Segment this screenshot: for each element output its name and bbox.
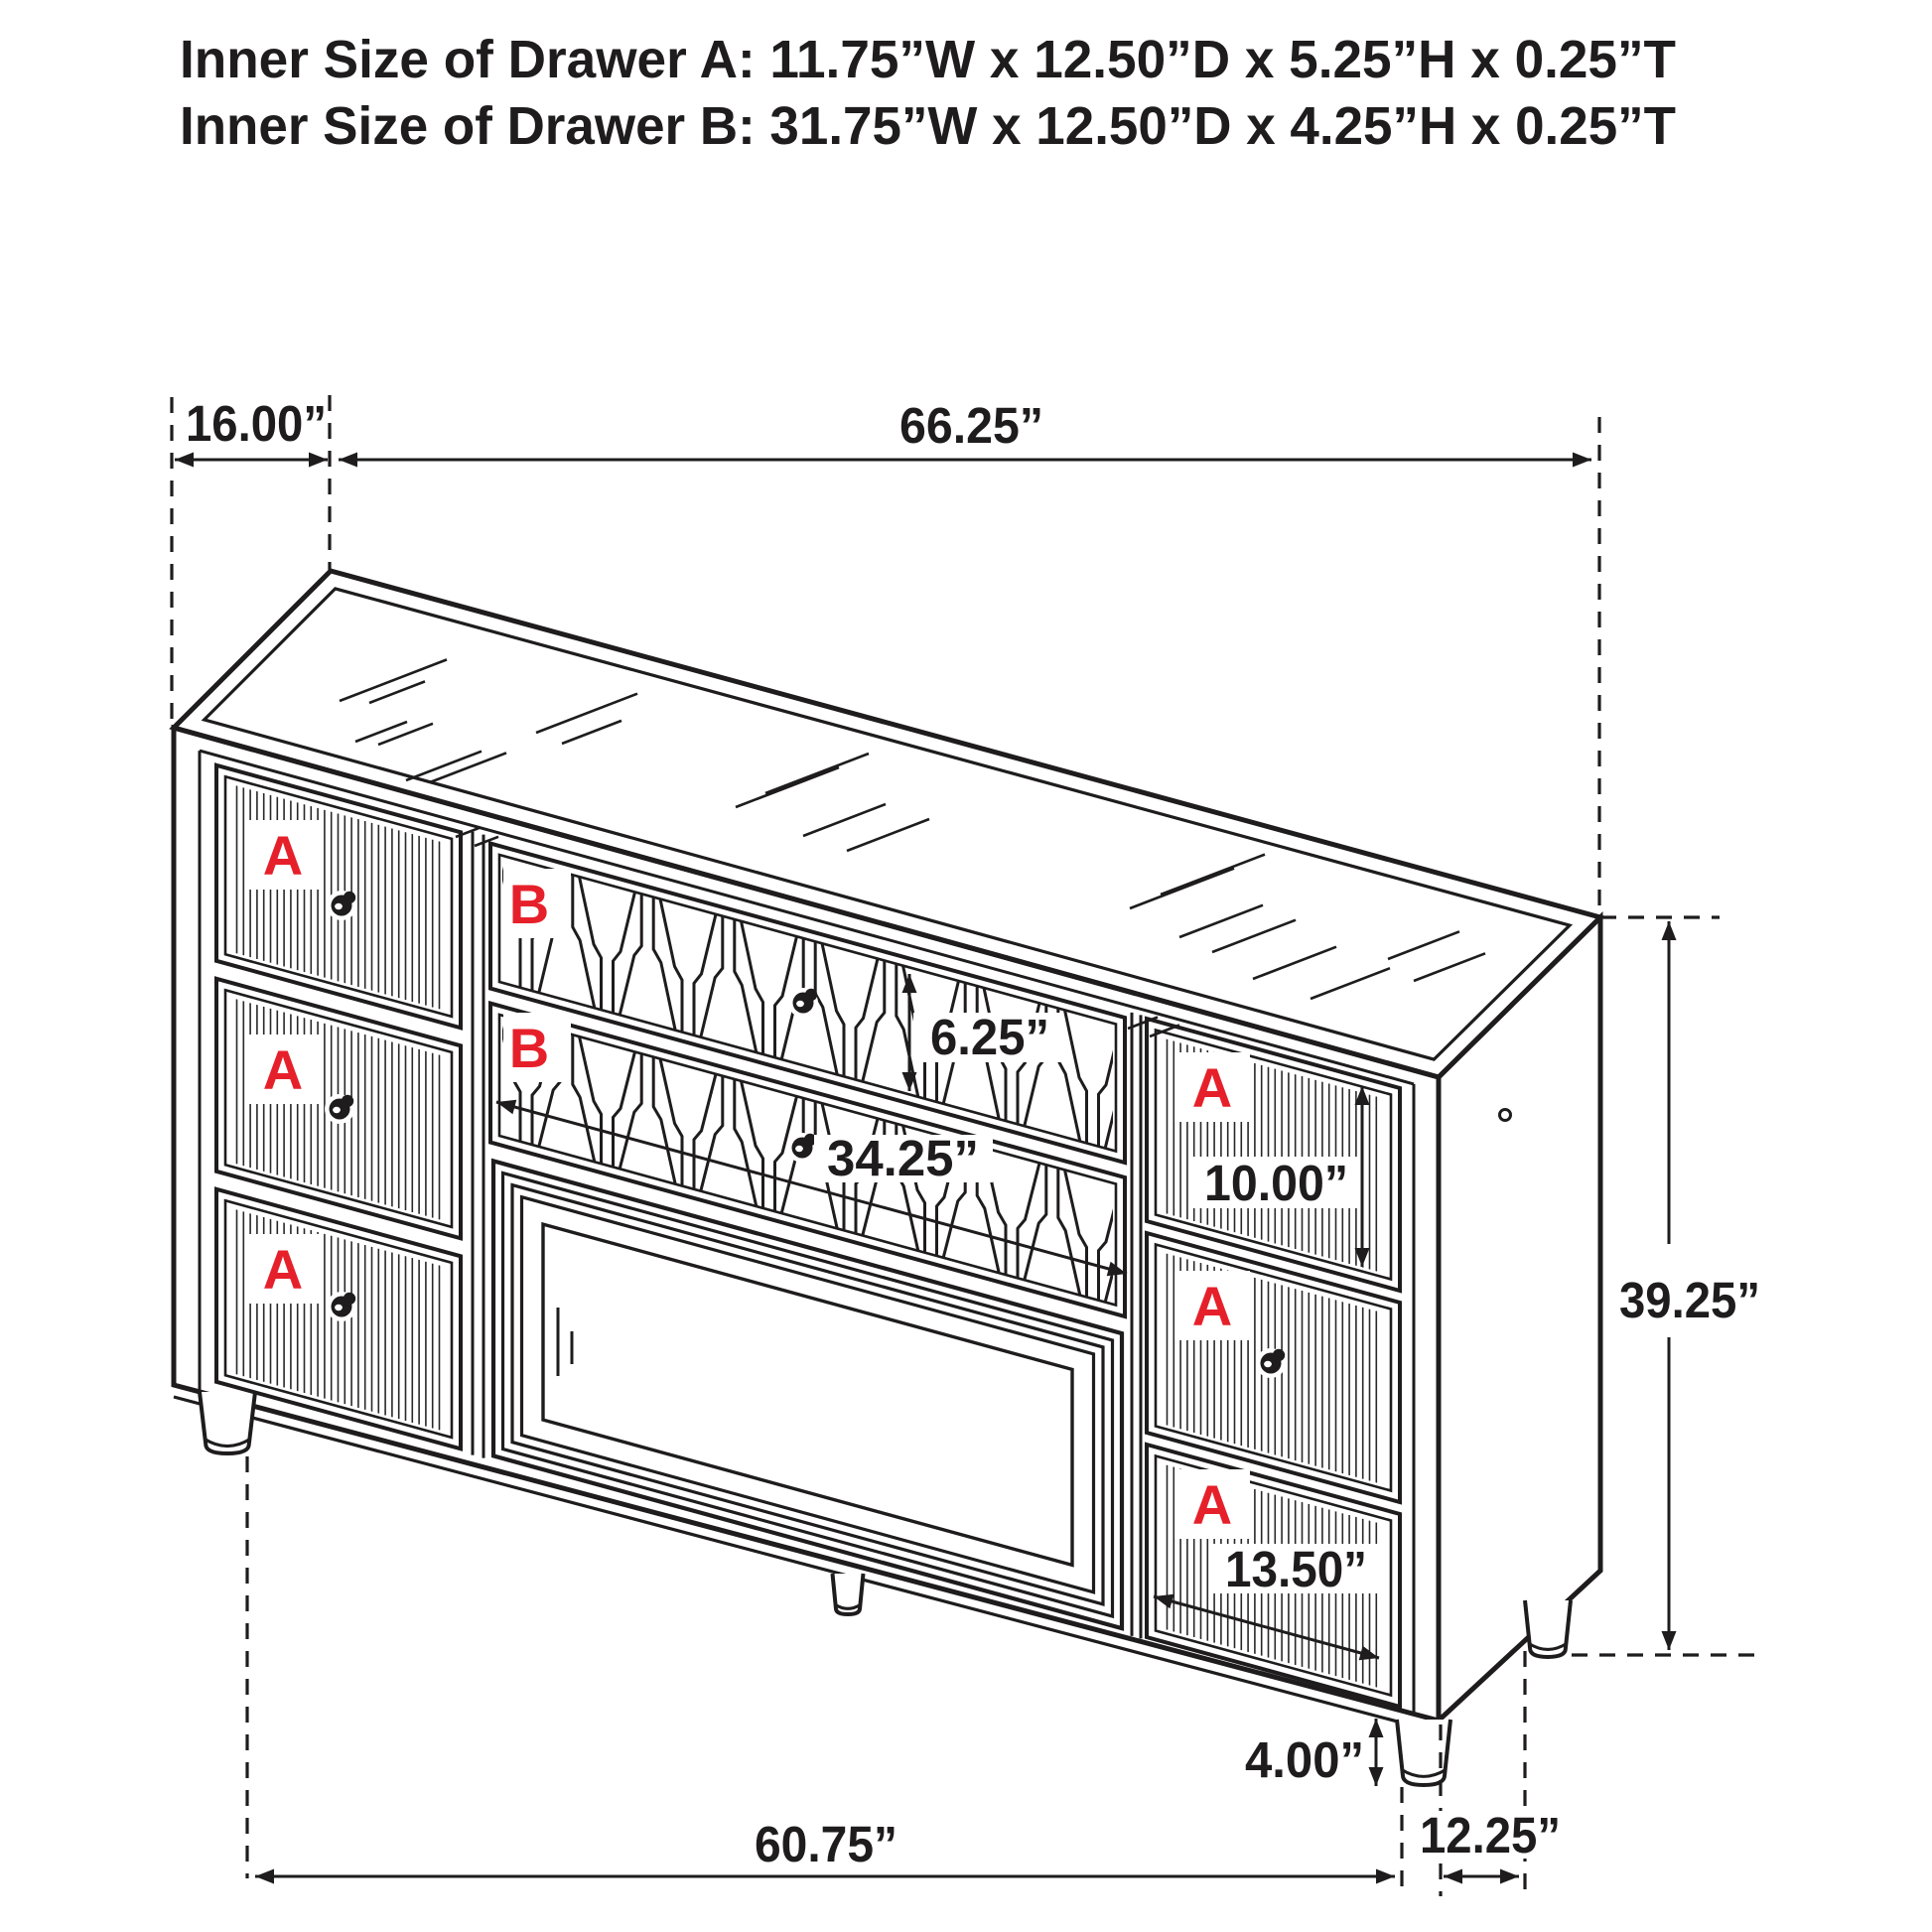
svg-text:6.25”: 6.25” bbox=[930, 1009, 1049, 1065]
svg-text:Inner Size of Drawer B: 31.75”: Inner Size of Drawer B: 31.75”W x 12.50”… bbox=[180, 96, 1676, 156]
svg-text:B: B bbox=[509, 1017, 549, 1079]
svg-text:A: A bbox=[263, 1238, 303, 1301]
svg-text:A: A bbox=[1192, 1275, 1232, 1337]
svg-text:12.25”: 12.25” bbox=[1420, 1807, 1561, 1863]
svg-text:A: A bbox=[1192, 1056, 1232, 1119]
svg-text:13.50”: 13.50” bbox=[1225, 1541, 1367, 1597]
svg-text:4.00”: 4.00” bbox=[1245, 1731, 1364, 1788]
svg-text:B: B bbox=[509, 873, 549, 935]
svg-text:34.25”: 34.25” bbox=[827, 1130, 979, 1186]
svg-text:A: A bbox=[263, 1038, 303, 1101]
svg-text:66.25”: 66.25” bbox=[899, 397, 1043, 454]
svg-text:A: A bbox=[1192, 1473, 1232, 1536]
svg-text:39.25”: 39.25” bbox=[1619, 1272, 1760, 1328]
svg-text:A: A bbox=[263, 824, 303, 887]
svg-text:Inner Size of Drawer A: 11.75”: Inner Size of Drawer A: 11.75”W x 12.50”… bbox=[180, 30, 1676, 89]
svg-text:10.00”: 10.00” bbox=[1204, 1155, 1348, 1211]
svg-text:16.00”: 16.00” bbox=[186, 395, 327, 452]
svg-text:60.75”: 60.75” bbox=[755, 1816, 897, 1872]
